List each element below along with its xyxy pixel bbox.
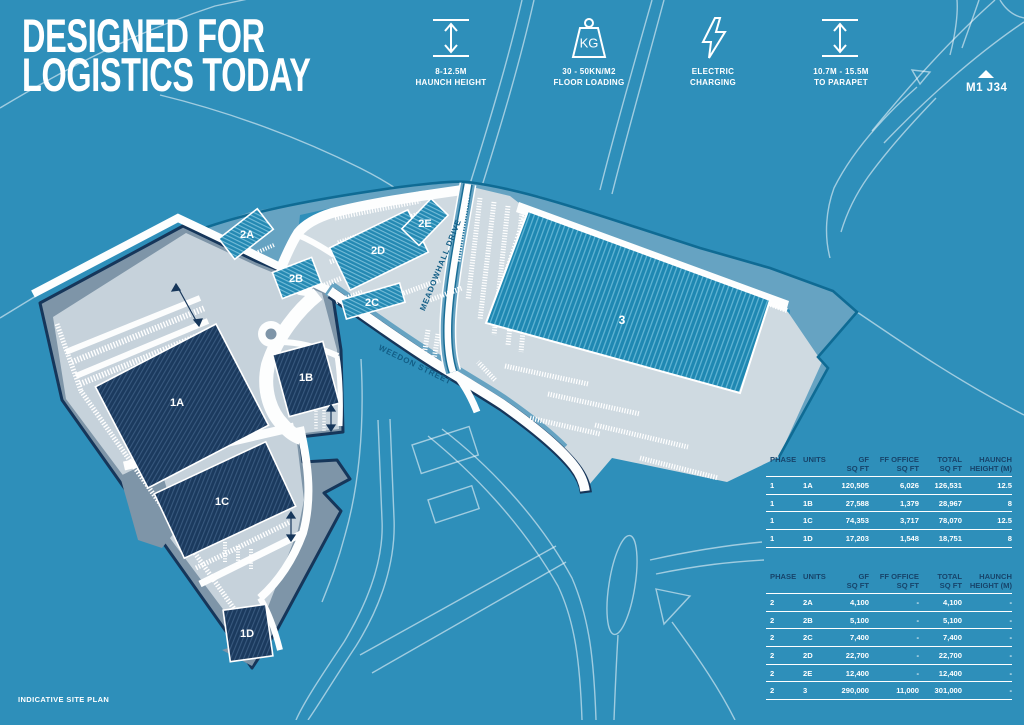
svg-text:2C: 2C	[365, 297, 379, 309]
svg-text:3: 3	[619, 313, 626, 327]
svg-text:2B: 2B	[289, 273, 303, 285]
svg-text:2A: 2A	[240, 229, 254, 241]
svg-text:KG: KG	[580, 36, 599, 51]
svg-text:1B: 1B	[299, 372, 313, 384]
svg-text:1A: 1A	[170, 397, 184, 409]
svg-text:1C: 1C	[215, 496, 229, 508]
svg-text:1D: 1D	[240, 628, 254, 640]
svg-text:2D: 2D	[371, 245, 385, 257]
svg-text:2E: 2E	[418, 218, 431, 230]
